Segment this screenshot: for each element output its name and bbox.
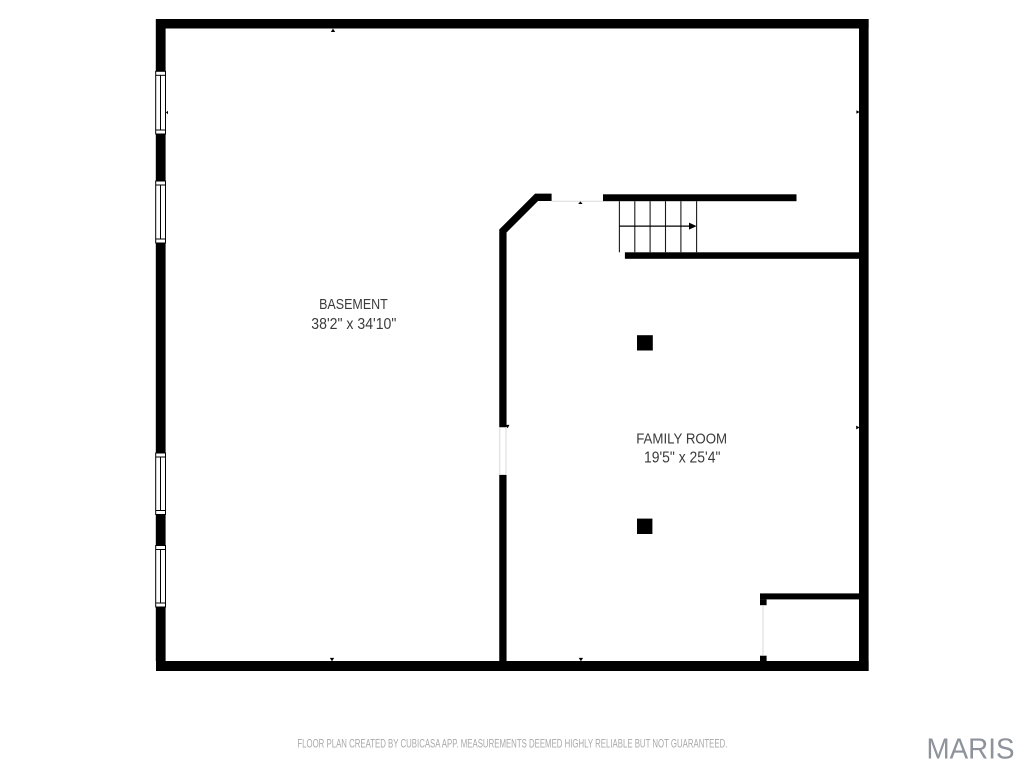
svg-text:MARIS: MARIS <box>927 734 1015 766</box>
svg-text:38'2" x 34'10": 38'2" x 34'10" <box>311 316 396 333</box>
svg-text:BASEMENT: BASEMENT <box>319 296 388 313</box>
svg-text:FAMILY ROOM: FAMILY ROOM <box>636 430 727 447</box>
svg-text:19'5" x 25'4": 19'5" x 25'4" <box>644 449 720 466</box>
svg-text:FLOOR PLAN CREATED BY CUBICASA: FLOOR PLAN CREATED BY CUBICASA APP. MEAS… <box>297 737 727 751</box>
